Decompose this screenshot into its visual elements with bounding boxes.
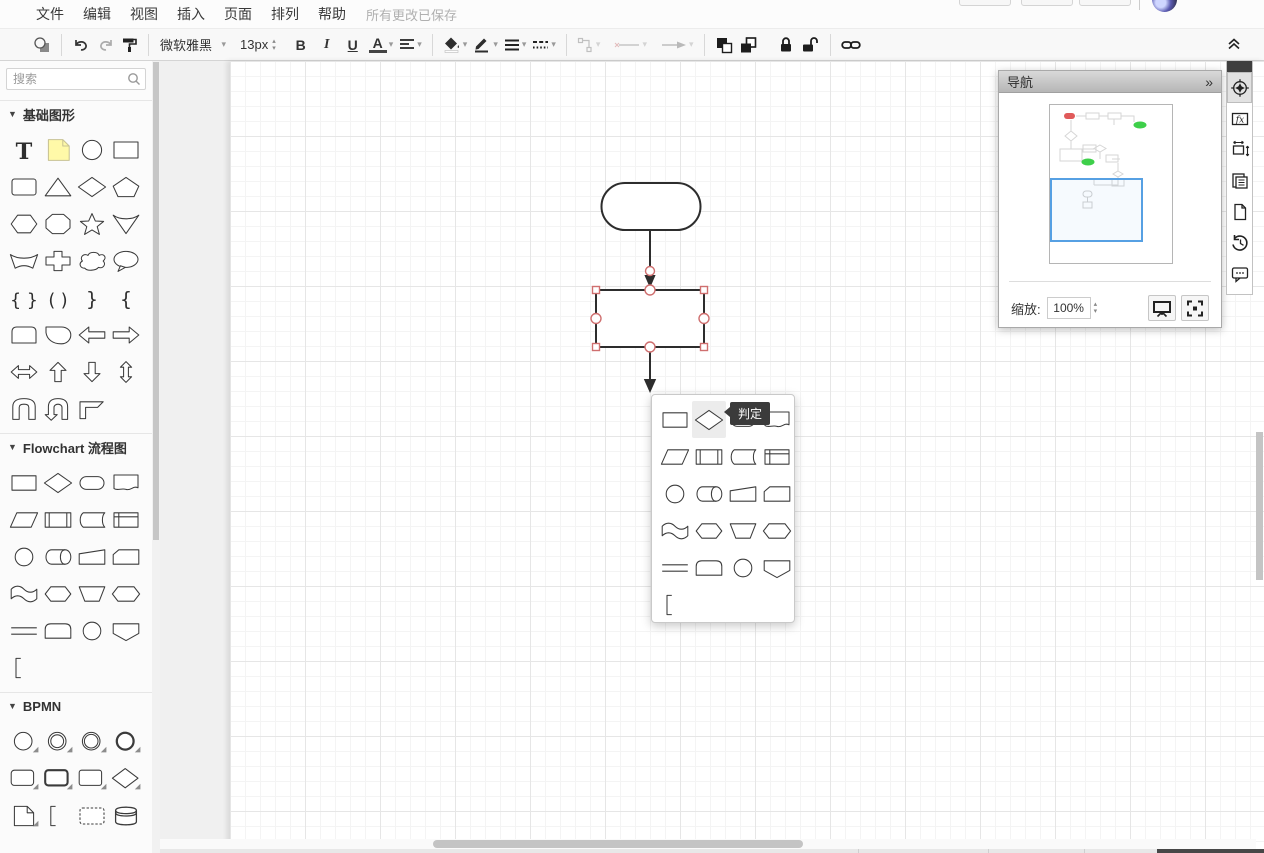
- chevron-down-icon: ▾: [389, 39, 394, 50]
- minimap-red-node: [1064, 113, 1075, 119]
- page-outline-button[interactable]: [1227, 196, 1252, 227]
- redo-icon: [97, 37, 114, 53]
- svg-text:( ): ( ): [48, 291, 67, 311]
- shape-fc-bracket[interactable]: [658, 586, 692, 623]
- shape-fc-hexagon[interactable]: [760, 512, 794, 549]
- waypoint-button[interactable]: ▾: [574, 32, 604, 58]
- lock-button[interactable]: [774, 32, 798, 58]
- underline-button[interactable]: U: [340, 32, 366, 58]
- shape-tooltip: 判定: [730, 402, 770, 425]
- navigation-footer: 缩放: ▴▾: [999, 289, 1221, 327]
- shape-bpmn-document[interactable]: [7, 797, 41, 834]
- section-basic-shapes: ▼ 基础图形 T{ }( )}{: [0, 100, 152, 433]
- line-color-button[interactable]: ▾: [470, 32, 501, 58]
- shape-fc-manual-input[interactable]: [75, 538, 109, 575]
- shape-fc-hexagon[interactable]: [109, 575, 143, 612]
- navigation-compass-icon: [1230, 78, 1250, 98]
- shape-ellipse[interactable]: [75, 131, 109, 168]
- shape-arc-band[interactable]: [7, 242, 41, 279]
- menu-item-1[interactable]: 编辑: [83, 4, 111, 24]
- italic-button[interactable]: I: [314, 32, 340, 58]
- font-family-select[interactable]: 微软雅黑 ▾: [156, 32, 230, 58]
- shape-arrow-double-h[interactable]: [7, 353, 41, 390]
- toolbar-separator: [830, 34, 831, 56]
- font-color-label: A: [369, 36, 387, 53]
- connection-handle-w[interactable]: [591, 314, 601, 324]
- save-status: 所有更改已保存: [366, 5, 457, 24]
- chevron-down-icon: ▾: [551, 39, 556, 50]
- bottom-bar-divider: [858, 849, 859, 853]
- shape-fc-manual-operation[interactable]: [726, 512, 760, 549]
- terminator-shape[interactable]: [602, 183, 701, 230]
- shape-arrow-up[interactable]: [41, 353, 75, 390]
- menu-item-3[interactable]: 插入: [177, 4, 205, 24]
- shape-bpmn-event-end[interactable]: [109, 723, 143, 760]
- shape-cone[interactable]: [109, 205, 143, 242]
- shape-fc-manual-input[interactable]: [726, 475, 760, 512]
- topbar-button-3[interactable]: [1079, 0, 1131, 6]
- to-back-button[interactable]: [736, 32, 760, 58]
- stepper-down-icon: ▾: [1094, 308, 1098, 315]
- section-collapse-icon: ▼: [8, 109, 17, 119]
- menu-items: 文件编辑视图插入页面排列帮助: [0, 4, 346, 24]
- right-icon-strip: fx: [1226, 61, 1253, 295]
- shape-fc-tape[interactable]: [7, 575, 41, 612]
- copies-icon: [1230, 171, 1250, 191]
- unlock-button[interactable]: [798, 32, 823, 58]
- shape-fc-display[interactable]: [41, 612, 75, 649]
- shape-pentagon[interactable]: [109, 168, 143, 205]
- canvas-horizontal-scrollbar-thumb[interactable]: [433, 840, 803, 848]
- shape-fc-terminator[interactable]: [75, 464, 109, 501]
- shape-bpmn-gateway[interactable]: [109, 760, 143, 797]
- presentation-icon: [1152, 299, 1172, 318]
- toolbar-separator: [61, 34, 62, 56]
- shape-fc-manual-operation[interactable]: [75, 575, 109, 612]
- shape-fc-offpage[interactable]: [760, 549, 794, 586]
- zoom-input[interactable]: [1047, 297, 1091, 319]
- dash-style-button[interactable]: ▾: [529, 32, 559, 58]
- shape-star[interactable]: [75, 205, 109, 242]
- shape-text[interactable]: T: [7, 131, 41, 168]
- shape-arrow-left[interactable]: [75, 316, 109, 353]
- format-painter-button[interactable]: [117, 32, 141, 58]
- align-icon: [399, 38, 415, 52]
- shape-library-sidebar: ▼ 基础图形 T{ }( )}{ ▼ Flowchart 流程图 ▼ BPMN: [0, 61, 152, 853]
- shape-cloud[interactable]: [75, 242, 109, 279]
- bold-button[interactable]: B: [288, 32, 314, 58]
- minimap-green-node-1: [1134, 122, 1147, 129]
- shape-picker-popup: 判定: [651, 394, 795, 623]
- presentation-button[interactable]: [1148, 295, 1176, 321]
- shape-fc-data[interactable]: [658, 438, 692, 475]
- shape-paren-pair[interactable]: ( ): [41, 279, 75, 316]
- shape-callout[interactable]: [109, 242, 143, 279]
- shape-fc-circle[interactable]: [726, 549, 760, 586]
- function-fx-button[interactable]: fx: [1227, 103, 1252, 134]
- shape-fc-decision[interactable]: [41, 464, 75, 501]
- resize-handle-ne[interactable]: [701, 287, 708, 294]
- search-input[interactable]: [6, 68, 146, 90]
- to-front-icon: [715, 36, 733, 54]
- shape-arrow-down[interactable]: [75, 353, 109, 390]
- section-bpmn: ▼ BPMN: [0, 692, 152, 840]
- shape-preview-circle: [35, 38, 45, 48]
- shape-fc-data[interactable]: [7, 501, 41, 538]
- bottom-bar-divider: [988, 849, 989, 853]
- shape-rectangle[interactable]: [109, 131, 143, 168]
- link-button[interactable]: [838, 32, 864, 58]
- comments-button[interactable]: [1227, 258, 1252, 289]
- shape-brace-right[interactable]: }: [75, 279, 109, 316]
- shape-bpmn-event-double[interactable]: [75, 723, 109, 760]
- resize-frame-button[interactable]: [1227, 134, 1252, 165]
- shape-hexagon[interactable]: [7, 205, 41, 242]
- stepper-up-icon: ▴: [1094, 301, 1098, 308]
- shape-bpmn-bracket[interactable]: [41, 797, 75, 834]
- shape-fc-document[interactable]: [109, 464, 143, 501]
- chevron-down-icon: ▾: [493, 39, 498, 50]
- shape-fc-decision[interactable]: [692, 401, 726, 438]
- shape-bpmn-task-thick[interactable]: [41, 760, 75, 797]
- edge-1-endpoint-handle[interactable]: [646, 267, 655, 276]
- toolbar-separator: [432, 34, 433, 56]
- shape-card-top[interactable]: [7, 316, 41, 353]
- connection-arrow-button[interactable]: ▾: [658, 32, 697, 58]
- svg-text:{ }: { }: [10, 291, 38, 311]
- section-collapse-icon: ▼: [8, 442, 17, 452]
- format-painter-icon: [121, 36, 138, 53]
- shape-fc-divided[interactable]: [7, 612, 41, 649]
- chevron-down-icon: ▾: [689, 39, 694, 50]
- bottom-bar-dark-segment: [1157, 849, 1264, 853]
- line-color-icon: [473, 36, 491, 53]
- shape-fc-predefined[interactable]: [41, 501, 75, 538]
- font-size-control[interactable]: 13px ▴▾: [240, 37, 276, 52]
- toolbar-separator: [704, 34, 705, 56]
- line-style-icon: [504, 38, 520, 52]
- connection-handle-s[interactable]: [645, 342, 655, 352]
- navigation-header[interactable]: 导航 »: [999, 71, 1221, 93]
- shape-preview-icon[interactable]: [30, 32, 54, 58]
- panel-collapse-icon[interactable]: »: [1205, 74, 1213, 90]
- flowchart-shape-grid: [0, 460, 152, 692]
- toolbar-separator: [148, 34, 149, 56]
- section-header-bpmn[interactable]: ▼ BPMN: [0, 693, 152, 719]
- history-button[interactable]: [1227, 227, 1252, 258]
- section-label: 基础图形: [23, 105, 75, 124]
- resize-frame-icon: [1230, 140, 1250, 160]
- shape-diamond[interactable]: [75, 168, 109, 205]
- menu-item-2[interactable]: 视图: [130, 4, 158, 24]
- fit-page-icon: [1185, 299, 1205, 318]
- shape-fc-direct-storage[interactable]: [692, 475, 726, 512]
- shape-bpmn-task-thin[interactable]: [75, 760, 109, 797]
- fit-page-button[interactable]: [1181, 295, 1209, 321]
- stepper-up-icon: ▴: [272, 38, 276, 45]
- chevron-down-icon: ▾: [522, 39, 527, 50]
- shape-fc-connector[interactable]: [658, 475, 692, 512]
- shape-fc-predefined[interactable]: [692, 438, 726, 475]
- resize-handle-sw[interactable]: [593, 344, 600, 351]
- edge-2-arrowhead: [644, 379, 656, 393]
- section-header-basic[interactable]: ▼ 基础图形: [0, 101, 152, 127]
- shape-bpmn-task[interactable]: [7, 760, 41, 797]
- connection-handle-n[interactable]: [645, 285, 655, 295]
- dash-style-icon: [532, 38, 549, 52]
- bottom-bar: [160, 849, 1264, 853]
- copies-button[interactable]: [1227, 165, 1252, 196]
- to-back-icon: [739, 36, 757, 54]
- shape-note[interactable]: [41, 131, 75, 168]
- collapse-toolbar-button[interactable]: [1226, 36, 1242, 55]
- shape-fc-process[interactable]: [7, 464, 41, 501]
- canvas-horizontal-scrollbar[interactable]: [160, 839, 1256, 849]
- topbar-button-2[interactable]: [1021, 0, 1073, 6]
- strip-buttons: fx: [1227, 72, 1252, 289]
- shape-blob[interactable]: [41, 316, 75, 353]
- shape-bpmn-datastore[interactable]: [109, 797, 143, 834]
- shape-fc-connector[interactable]: [7, 538, 41, 575]
- navigation-compass-button[interactable]: [1227, 72, 1252, 103]
- font-size-value: 13px: [240, 37, 268, 52]
- section-flowchart: ▼ Flowchart 流程图: [0, 433, 152, 692]
- shape-brace-left[interactable]: {: [109, 279, 143, 316]
- page-outline-icon: [1230, 202, 1250, 222]
- unlock-icon: [801, 36, 820, 53]
- shape-rounded-rectangle[interactable]: [7, 168, 41, 205]
- svg-text:{: {: [120, 288, 132, 311]
- shape-fc-bracket[interactable]: [7, 649, 41, 686]
- connection-arrow-icon: [661, 40, 687, 50]
- shape-bpmn-event[interactable]: [7, 723, 41, 760]
- navigation-title: 导航: [1007, 72, 1033, 91]
- fill-color-icon: [443, 36, 461, 53]
- history-icon: [1230, 233, 1250, 253]
- font-color-button[interactable]: A ▾: [366, 32, 397, 58]
- shape-octagon[interactable]: [41, 205, 75, 242]
- section-collapse-icon: ▼: [8, 701, 17, 711]
- svg-text:T: T: [16, 138, 33, 162]
- waypoint-icon: [577, 37, 594, 53]
- section-label: Flowchart 流程图: [23, 438, 127, 457]
- search-icon: [127, 72, 141, 86]
- shape-picker-grid: [652, 395, 794, 623]
- chevron-down-icon: ▾: [642, 39, 647, 50]
- topbar-divider: [1139, 0, 1140, 10]
- bottom-bar-divider: [1084, 849, 1085, 853]
- resize-handle-se[interactable]: [701, 344, 708, 351]
- shape-fc-stored-data[interactable]: [726, 438, 760, 475]
- to-front-button[interactable]: [712, 32, 736, 58]
- shape-fc-hexagon-round[interactable]: [41, 575, 75, 612]
- stepper-down-icon: ▾: [272, 45, 276, 52]
- menu-item-4[interactable]: 页面: [224, 4, 252, 24]
- chevron-down-icon: ▾: [417, 39, 422, 50]
- link-icon: [841, 39, 861, 51]
- shape-fc-internal-storage[interactable]: [109, 501, 143, 538]
- minimap-viewport[interactable]: [1051, 179, 1142, 241]
- sidebar-scrollbar-thumb[interactable]: [153, 62, 159, 540]
- shape-fc-offpage[interactable]: [109, 612, 143, 649]
- shape-fc-display[interactable]: [692, 549, 726, 586]
- minimap[interactable]: [1049, 104, 1173, 264]
- shape-fc-process[interactable]: [658, 401, 692, 438]
- redo-button[interactable]: [93, 32, 117, 58]
- shape-fc-internal-storage[interactable]: [760, 438, 794, 475]
- line-style-button[interactable]: ▾: [501, 32, 530, 58]
- connection-line-icon: [614, 40, 640, 50]
- navigation-panel: 导航 »: [998, 70, 1222, 328]
- toolbar-separator: [566, 34, 567, 56]
- chevrons-up-icon: [1226, 36, 1242, 50]
- shape-fc-stored-data[interactable]: [75, 501, 109, 538]
- svg-text:fx: fx: [1234, 115, 1243, 125]
- shape-bpmn-event-intermediate[interactable]: [41, 723, 75, 760]
- shape-fc-tape[interactable]: [658, 512, 692, 549]
- chevron-down-icon: ▾: [221, 39, 226, 50]
- zoom-label: 缩放:: [1011, 299, 1041, 318]
- shape-arrow-double-v[interactable]: [109, 353, 143, 390]
- shape-bpmn-group[interactable]: [75, 797, 109, 834]
- minimap-diagram: [1050, 105, 1172, 263]
- minimap-green-node-2: [1082, 159, 1095, 166]
- toolbar: 微软雅黑 ▾ 13px ▴▾ B I U A ▾ ▾ ▾ ▾ ▾ ▾ ▾ ▾: [0, 28, 1264, 61]
- comments-icon: [1230, 264, 1250, 284]
- shape-triangle[interactable]: [41, 168, 75, 205]
- section-label: BPMN: [23, 699, 61, 714]
- shape-corner[interactable]: [75, 390, 109, 427]
- connection-handle-e[interactable]: [699, 314, 709, 324]
- undo-button[interactable]: [69, 32, 93, 58]
- menu-item-6[interactable]: 帮助: [318, 4, 346, 24]
- shape-fc-circle[interactable]: [75, 612, 109, 649]
- shape-fc-divided[interactable]: [658, 549, 692, 586]
- topbar-button-1[interactable]: [959, 0, 1011, 6]
- section-header-flowchart[interactable]: ▼ Flowchart 流程图: [0, 434, 152, 460]
- basic-shape-grid: T{ }( )}{: [0, 127, 152, 433]
- shape-fc-hexagon-round[interactable]: [692, 512, 726, 549]
- font-size-stepper[interactable]: ▴▾: [272, 38, 276, 52]
- shape-u-loop-arrow[interactable]: [41, 390, 75, 427]
- strip-header: [1227, 61, 1252, 72]
- align-button[interactable]: ▾: [396, 32, 425, 58]
- zoom-stepper[interactable]: ▴▾: [1094, 301, 1098, 315]
- shape-fc-card[interactable]: [109, 538, 143, 575]
- selected-rectangle-shape[interactable]: [596, 290, 704, 347]
- undo-icon: [73, 37, 90, 53]
- sidebar-scrollbar[interactable]: [152, 61, 160, 853]
- chevron-down-icon: ▾: [463, 39, 468, 50]
- lock-icon: [778, 36, 794, 53]
- user-avatar[interactable]: [1152, 0, 1177, 12]
- shape-u-loop[interactable]: [7, 390, 41, 427]
- shape-fc-card[interactable]: [760, 475, 794, 512]
- svg-text:}: }: [86, 288, 98, 311]
- bpmn-shape-grid: [0, 719, 152, 840]
- navigation-divider: [1009, 281, 1211, 282]
- menu-item-0[interactable]: 文件: [36, 4, 64, 24]
- font-family-value: 微软雅黑: [160, 35, 212, 54]
- resize-handle-nw[interactable]: [593, 287, 600, 294]
- shape-cross[interactable]: [41, 242, 75, 279]
- fill-color-button[interactable]: ▾: [440, 32, 471, 58]
- canvas-vertical-scrollbar-thumb[interactable]: [1256, 432, 1263, 580]
- shape-brace-pair[interactable]: { }: [7, 279, 41, 316]
- chevron-down-icon: ▾: [596, 39, 601, 50]
- connection-line-button[interactable]: ▾: [611, 32, 650, 58]
- shape-fc-direct-storage[interactable]: [41, 538, 75, 575]
- shape-arrow-right[interactable]: [109, 316, 143, 353]
- function-fx-icon: fx: [1230, 109, 1250, 129]
- menu-item-5[interactable]: 排列: [271, 4, 299, 24]
- menubar: 文件编辑视图插入页面排列帮助 所有更改已保存: [0, 0, 1264, 28]
